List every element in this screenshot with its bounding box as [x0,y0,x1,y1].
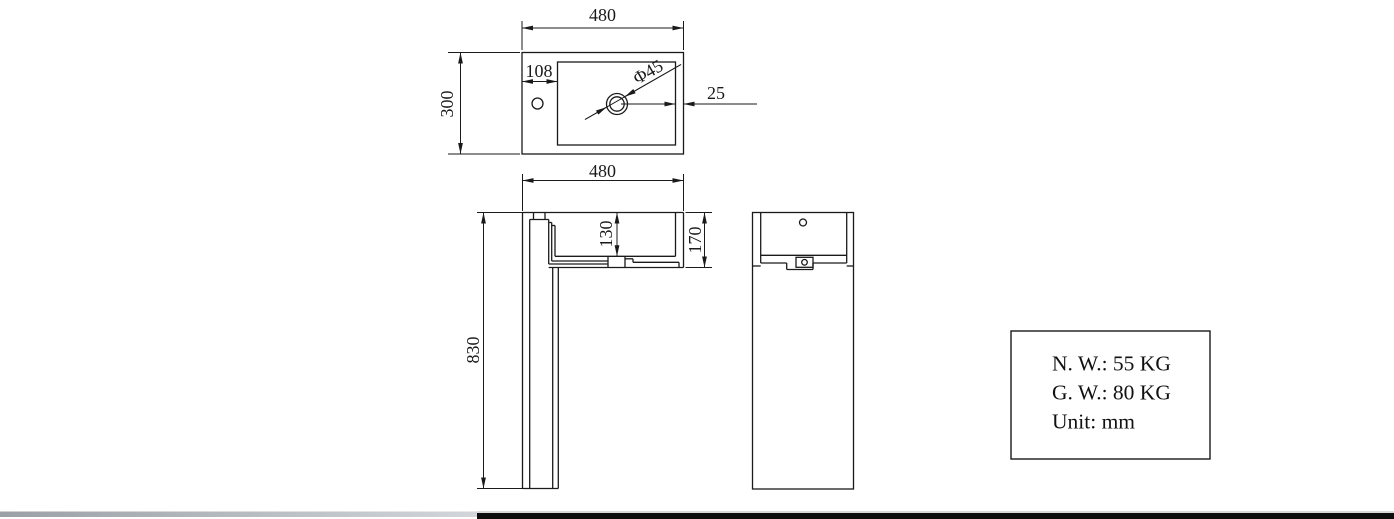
info-box: N. W.: 55 KG G. W.: 80 KG Unit: mm [1011,331,1210,459]
dim-label-faucet-offset: 108 [526,61,553,81]
dim-label-rim-gap: 25 [707,83,725,103]
basin-drawing-svg: 480 300 108 25 Φ45 [0,0,1394,519]
dim-label-top-width: 480 [589,5,616,25]
unit-label: Unit: mm [1052,410,1135,434]
dim-label-top-depth: 300 [437,91,457,118]
dim-label-total-height: 830 [463,337,483,364]
gross-weight-label: G. W.: 80 KG [1052,381,1171,405]
dim-label-basin-depth: 130 [596,221,616,248]
dim-label-rim-height: 170 [685,227,705,254]
net-weight-label: N. W.: 55 KG [1052,352,1171,376]
technical-drawing-canvas: 480 300 108 25 Φ45 [0,0,1394,519]
ground-bar-gray [0,512,477,518]
ground-bar-black [477,513,1394,519]
dim-label-front-width: 480 [589,161,616,181]
dim-faucet-offset: 108 [522,61,558,82]
ground-bar-highlight [477,511,1394,513]
